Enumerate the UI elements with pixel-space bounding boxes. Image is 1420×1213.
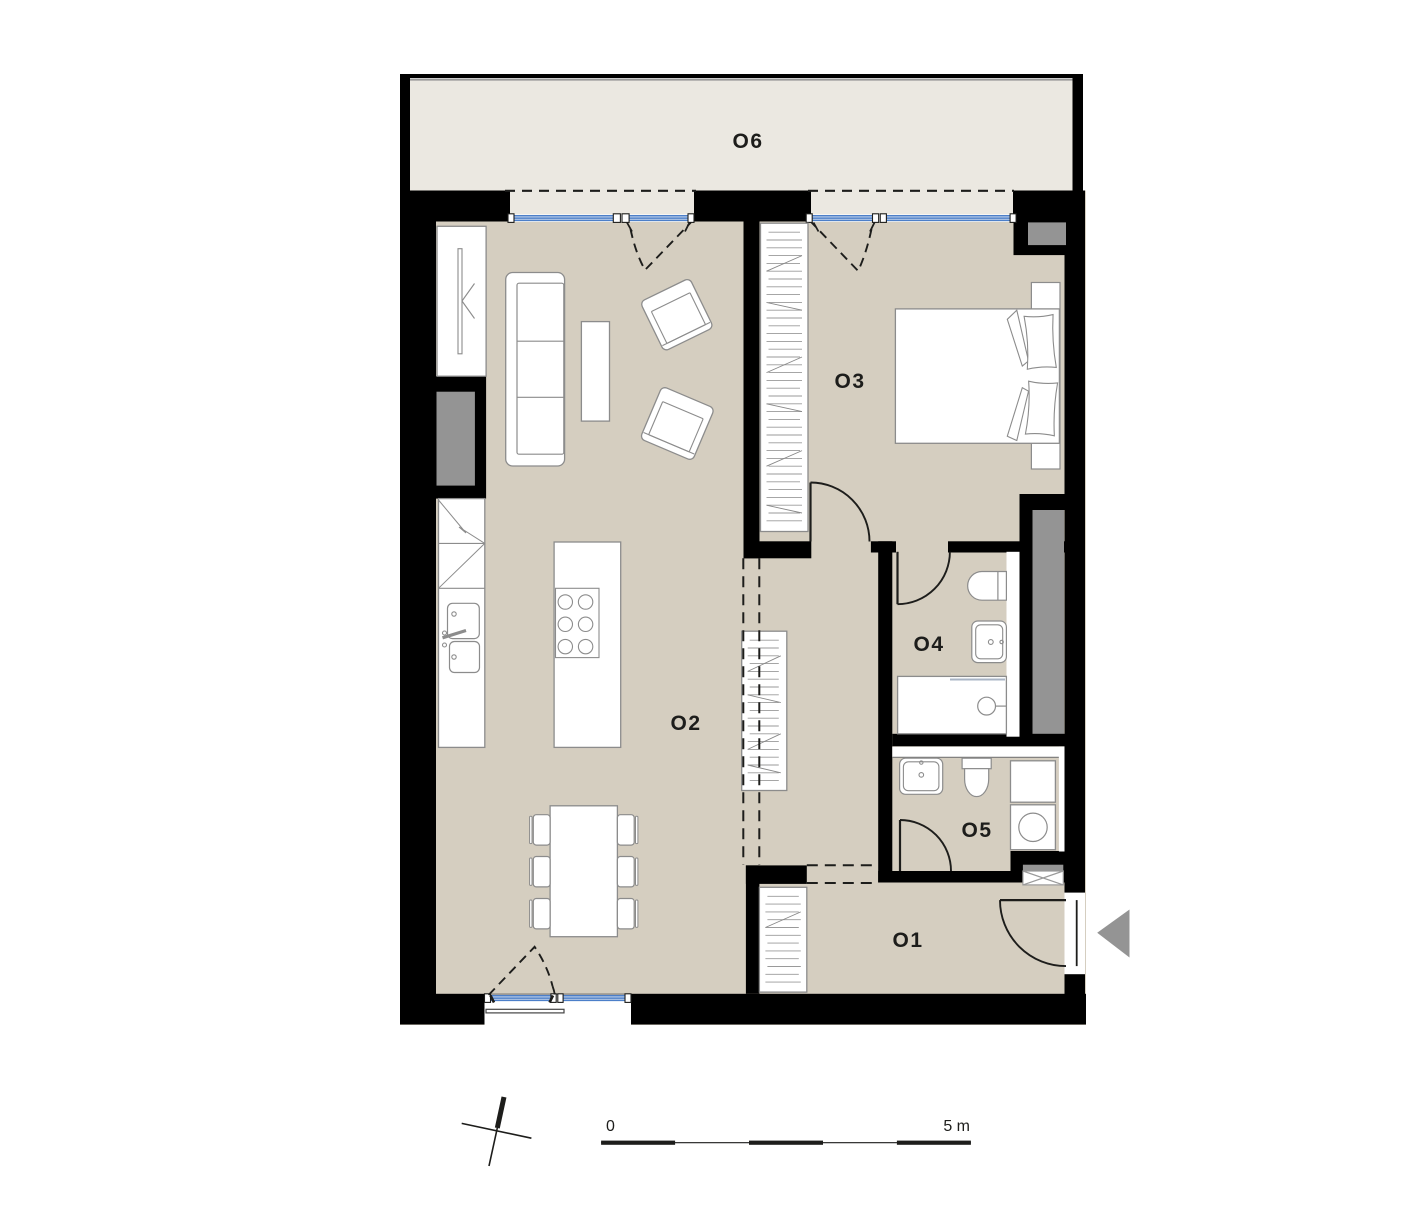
svg-text:O6: O6: [732, 130, 763, 153]
svg-text:O3: O3: [834, 370, 865, 393]
svg-text:O2: O2: [670, 712, 701, 735]
svg-text:5 m: 5 m: [943, 1118, 970, 1135]
svg-text:0: 0: [606, 1118, 615, 1135]
svg-text:O4: O4: [913, 633, 944, 656]
svg-text:O5: O5: [961, 819, 992, 842]
svg-text:O1: O1: [892, 929, 923, 952]
